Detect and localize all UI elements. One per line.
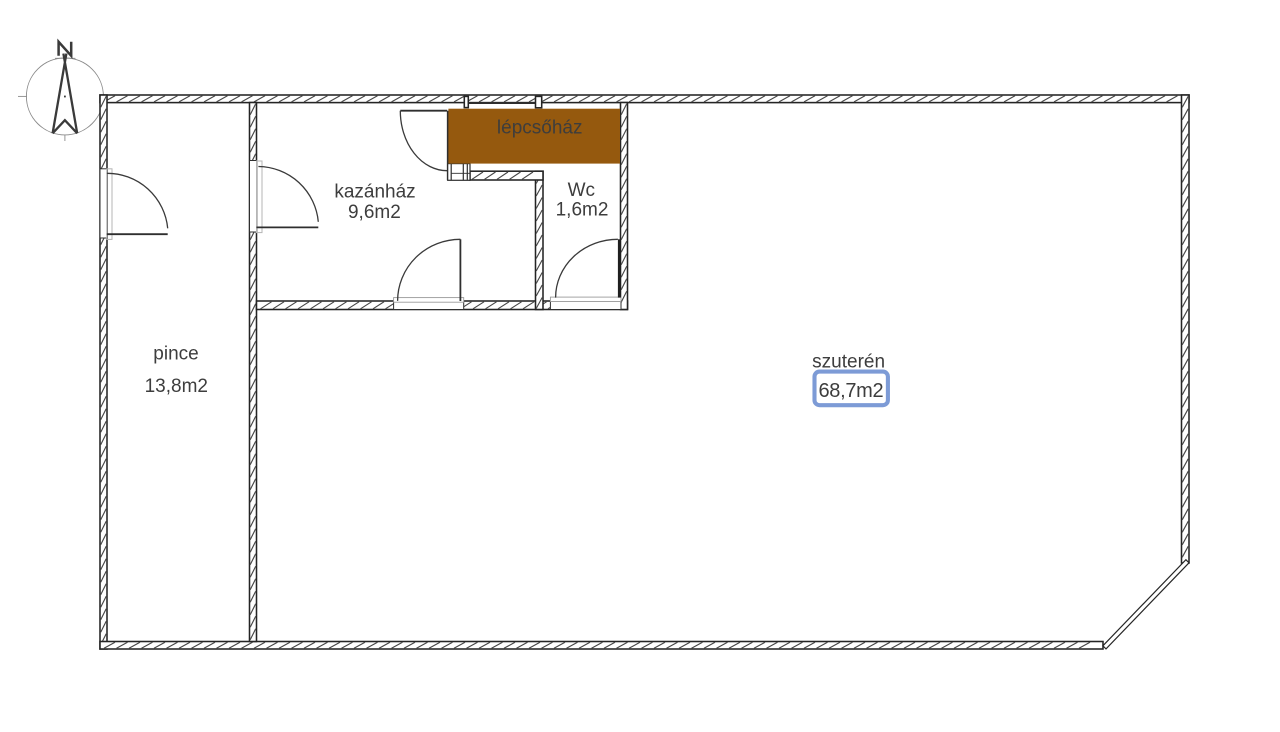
svg-text:9,6m2: 9,6m2 — [348, 202, 401, 223]
svg-text:Wc: Wc — [568, 180, 595, 201]
svg-text:68,7m2: 68,7m2 — [818, 380, 883, 402]
svg-text:13,8m2: 13,8m2 — [145, 376, 208, 397]
svg-text:kazánház: kazánház — [334, 181, 415, 202]
svg-text:pince: pince — [153, 344, 198, 365]
svg-text:1,6m2: 1,6m2 — [556, 199, 609, 220]
svg-text:lépcsőház: lépcsőház — [497, 118, 583, 139]
svg-text:szuterén: szuterén — [812, 352, 885, 373]
